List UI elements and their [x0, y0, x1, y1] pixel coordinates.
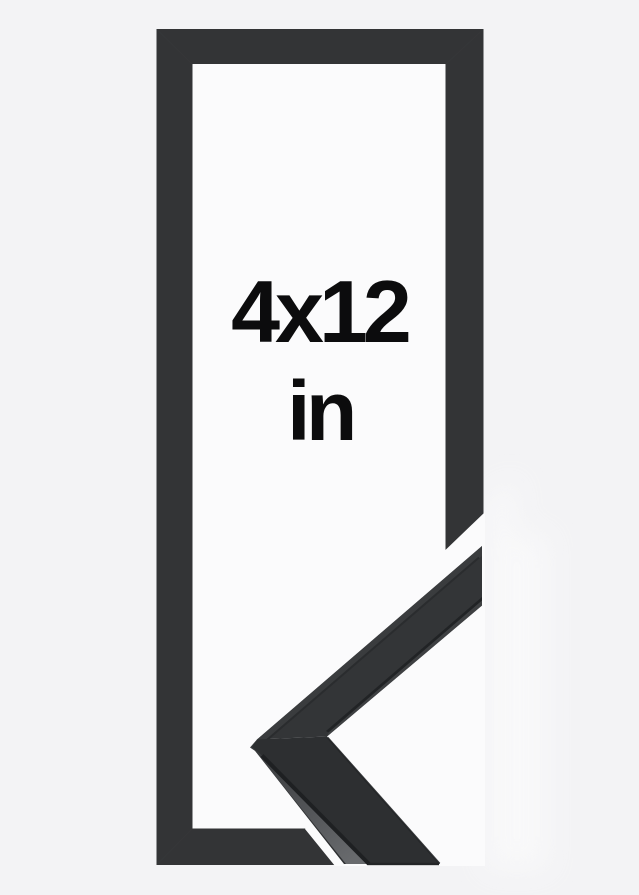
- svg-text:4x12: 4x12: [231, 262, 409, 361]
- svg-text:in: in: [287, 364, 353, 458]
